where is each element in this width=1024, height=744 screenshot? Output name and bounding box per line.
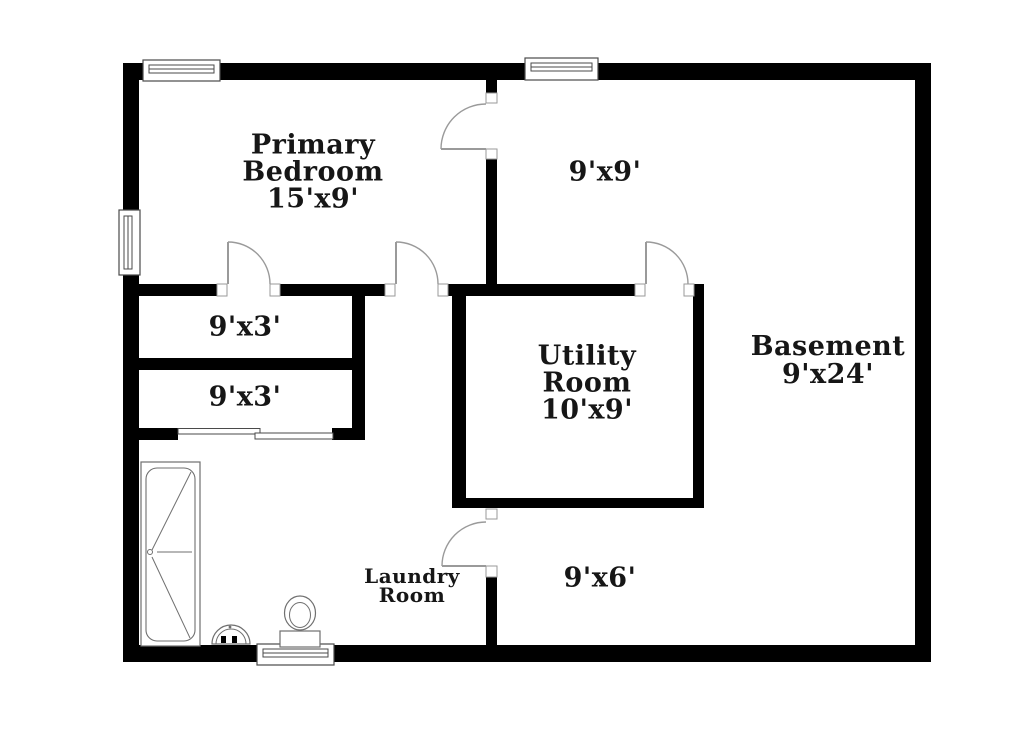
- wall: [280, 284, 385, 296]
- door-jamb: [684, 284, 694, 296]
- door-swing-arc: [396, 242, 438, 284]
- label-line: 9'x3': [209, 384, 282, 411]
- wall: [452, 296, 466, 508]
- sliding-door-panel: [255, 433, 333, 439]
- label-closet-bottom: 9'x3': [209, 384, 282, 411]
- label-line: Room: [364, 586, 460, 605]
- wall: [139, 428, 178, 440]
- wall: [139, 284, 217, 296]
- label-line: 10'x9': [538, 397, 636, 424]
- label-closet-top: 9'x3': [209, 314, 282, 341]
- label-utility-room: Utility Room 10'x9': [538, 343, 636, 424]
- label-room-9x9: 9'x9': [569, 159, 642, 186]
- door-jamb: [635, 284, 645, 296]
- door-swing-arc: [442, 522, 486, 566]
- door-swing-arc: [646, 242, 688, 284]
- label-line: 9'x9': [569, 159, 642, 186]
- door-jamb: [438, 284, 448, 296]
- wall: [139, 358, 365, 370]
- floor-plan: Primary Bedroom 15'x9' 9'x9' 9'x3' 9'x3'…: [0, 0, 1024, 744]
- wall: [915, 63, 931, 662]
- door-jamb: [486, 509, 497, 519]
- sink-drain: [229, 626, 232, 629]
- toilet-bowl-inner: [290, 603, 311, 628]
- door-jamb: [270, 284, 280, 296]
- sliding-door-panel: [178, 429, 260, 435]
- label-line: Basement: [751, 333, 906, 361]
- wall: [123, 63, 139, 662]
- wall: [123, 645, 931, 662]
- label-line: 15'x9': [242, 186, 383, 213]
- door-jamb: [217, 284, 227, 296]
- wall: [448, 284, 635, 296]
- door-jamb: [385, 284, 395, 296]
- door-jamb: [486, 566, 497, 577]
- wall: [693, 284, 704, 508]
- sink-faucet: [232, 636, 237, 643]
- label-line: Room: [538, 370, 636, 397]
- sink-faucet: [221, 636, 226, 643]
- label-line: 9'x3': [209, 314, 282, 341]
- label-laundry-room: Laundry Room: [364, 567, 460, 605]
- wall: [486, 159, 497, 285]
- bathtub-basin: [146, 468, 195, 641]
- toilet-tank: [280, 631, 320, 647]
- door-jamb: [486, 93, 497, 103]
- bathtub-drain: [148, 550, 153, 555]
- label-primary-bedroom: Primary Bedroom 15'x9': [242, 132, 383, 213]
- label-line: 9'x6': [564, 565, 637, 592]
- door-swing-arc: [441, 104, 486, 149]
- door-jamb: [486, 149, 497, 159]
- label-line: Primary: [242, 132, 383, 159]
- wall: [452, 498, 704, 508]
- wall: [352, 284, 365, 440]
- door-swing-arc: [228, 242, 270, 284]
- wall: [486, 80, 497, 94]
- label-line: Utility: [538, 343, 636, 370]
- label-line: Bedroom: [242, 159, 383, 186]
- wall: [486, 577, 497, 645]
- label-area-9x6: 9'x6': [564, 565, 637, 592]
- label-line: 9'x24': [751, 361, 906, 389]
- label-basement: Basement 9'x24': [751, 333, 906, 389]
